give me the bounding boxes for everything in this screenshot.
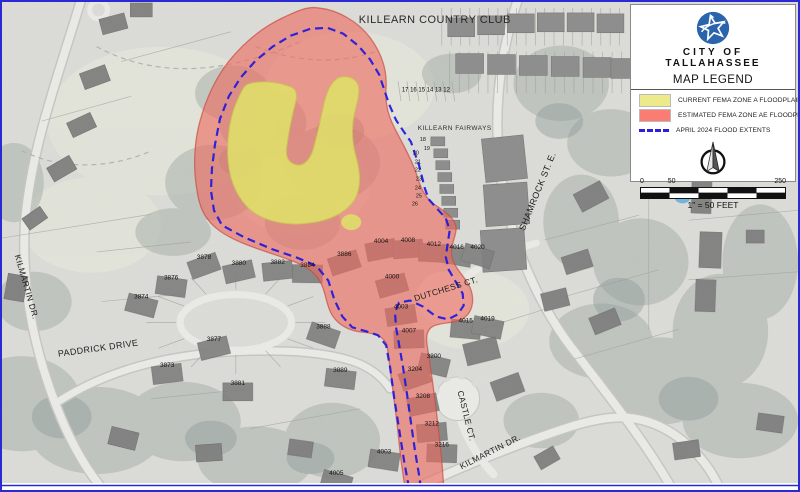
unit-number: 18 bbox=[420, 137, 426, 143]
unit-number: 22 bbox=[415, 168, 421, 174]
house-number: 3204 bbox=[408, 366, 423, 373]
scale-cell bbox=[757, 193, 786, 199]
area-label: KILLEARN COUNTRY CLUB bbox=[359, 14, 511, 26]
legend-item-flood-extents: APRIL 2024 FLOOD EXTENTS bbox=[639, 124, 789, 137]
scale-caption: 1" = 50 FEET bbox=[640, 200, 786, 210]
scale-cell bbox=[728, 188, 757, 194]
house-number: 4003 bbox=[394, 303, 409, 310]
house-number: 3888 bbox=[316, 323, 331, 330]
house-number: 4012 bbox=[427, 241, 442, 248]
unit-number: 19 bbox=[424, 146, 430, 152]
scale-cell bbox=[670, 188, 699, 194]
house-number: 3884 bbox=[300, 262, 315, 269]
house-number: 3881 bbox=[231, 380, 246, 387]
unit-number: 23 bbox=[416, 177, 422, 183]
legend-title: MAP LEGEND bbox=[673, 74, 753, 86]
house-number: 3216 bbox=[435, 441, 450, 448]
scale-cell bbox=[641, 193, 670, 199]
flood-extents-label: APRIL 2024 FLOOD EXTENTS bbox=[676, 127, 771, 134]
city-logo bbox=[694, 9, 732, 47]
org-line1: CITY OF bbox=[665, 47, 760, 58]
bottom-margin bbox=[2, 483, 798, 490]
house-number: 3880 bbox=[232, 260, 247, 267]
unit-number: 26 bbox=[412, 201, 418, 207]
scale-tick-50: 50 bbox=[668, 178, 676, 185]
zone-ae-label: ESTIMATED FEMA ZONE AE FLOODPLAIN bbox=[678, 112, 800, 119]
legend-items: CURRENT FEMA ZONE A FLOODPLAIN ESTIMATED… bbox=[631, 90, 795, 140]
scale-bar-graphic bbox=[640, 187, 786, 199]
house-number: 3873 bbox=[160, 362, 175, 369]
house-number: 4007 bbox=[402, 327, 417, 334]
house-number: 3212 bbox=[425, 421, 440, 428]
unit-number: 20 bbox=[413, 151, 419, 157]
org-name: CITY OF TALLAHASSEE bbox=[665, 47, 760, 69]
house-number: 3886 bbox=[337, 251, 352, 258]
house-number: 4005 bbox=[329, 470, 344, 477]
unit-number: 24 bbox=[415, 185, 421, 191]
legend-item-zone-ae: ESTIMATED FEMA ZONE AE FLOODPLAIN bbox=[639, 109, 789, 122]
north-arrow bbox=[694, 140, 732, 178]
scale-bar: 0 50 250 1" = 50 FEET bbox=[640, 178, 786, 210]
house-number: 3877 bbox=[207, 336, 222, 343]
house-number: 3874 bbox=[134, 294, 149, 301]
unit-number: 25 bbox=[416, 193, 422, 199]
flood-extents-swatch bbox=[639, 129, 669, 132]
house-number: 4000 bbox=[385, 274, 400, 281]
legend-title-rule: MAP LEGEND bbox=[631, 70, 795, 90]
house-number: 3878 bbox=[197, 254, 212, 261]
scale-cell bbox=[699, 193, 728, 199]
house-number: 3876 bbox=[164, 275, 179, 282]
house-number: 4019 bbox=[480, 315, 495, 322]
flood-map-frame: KILLEARN COUNTRY CLUBKILLEARN FAIRWAYSSH… bbox=[0, 0, 800, 492]
house-number: 3889 bbox=[333, 367, 348, 374]
scale-tick-250: 250 bbox=[774, 178, 786, 185]
unit-number: 21 bbox=[415, 160, 421, 166]
house-number: 4016 bbox=[450, 244, 465, 251]
house-number: 4004 bbox=[374, 238, 389, 245]
zone-a-swatch bbox=[639, 94, 671, 107]
house-number: 3208 bbox=[416, 393, 431, 400]
lot-row-label: 17 16 15 14 13 12 bbox=[402, 87, 451, 93]
scale-tick-0: 0 bbox=[640, 178, 644, 185]
house-number: 3882 bbox=[270, 259, 285, 266]
area-label: KILLEARN FAIRWAYS bbox=[418, 125, 492, 132]
house-number: 4008 bbox=[401, 237, 416, 244]
scale-ticks: 0 50 250 bbox=[640, 178, 786, 187]
map-legend-panel: CITY OF TALLAHASSEE MAP LEGEND CURRENT F… bbox=[630, 4, 796, 182]
zone-a-label: CURRENT FEMA ZONE A FLOODPLAIN bbox=[678, 97, 800, 104]
house-number: 4020 bbox=[470, 244, 485, 251]
zone-a-current-floodplain-tip bbox=[341, 214, 361, 230]
org-line2: TALLAHASSEE bbox=[665, 58, 760, 69]
house-number: 3200 bbox=[427, 353, 442, 360]
house-number: 4003 bbox=[377, 448, 392, 455]
legend-item-zone-a: CURRENT FEMA ZONE A FLOODPLAIN bbox=[639, 94, 789, 107]
house-number: 4015 bbox=[458, 317, 473, 324]
zone-ae-swatch bbox=[639, 109, 671, 122]
